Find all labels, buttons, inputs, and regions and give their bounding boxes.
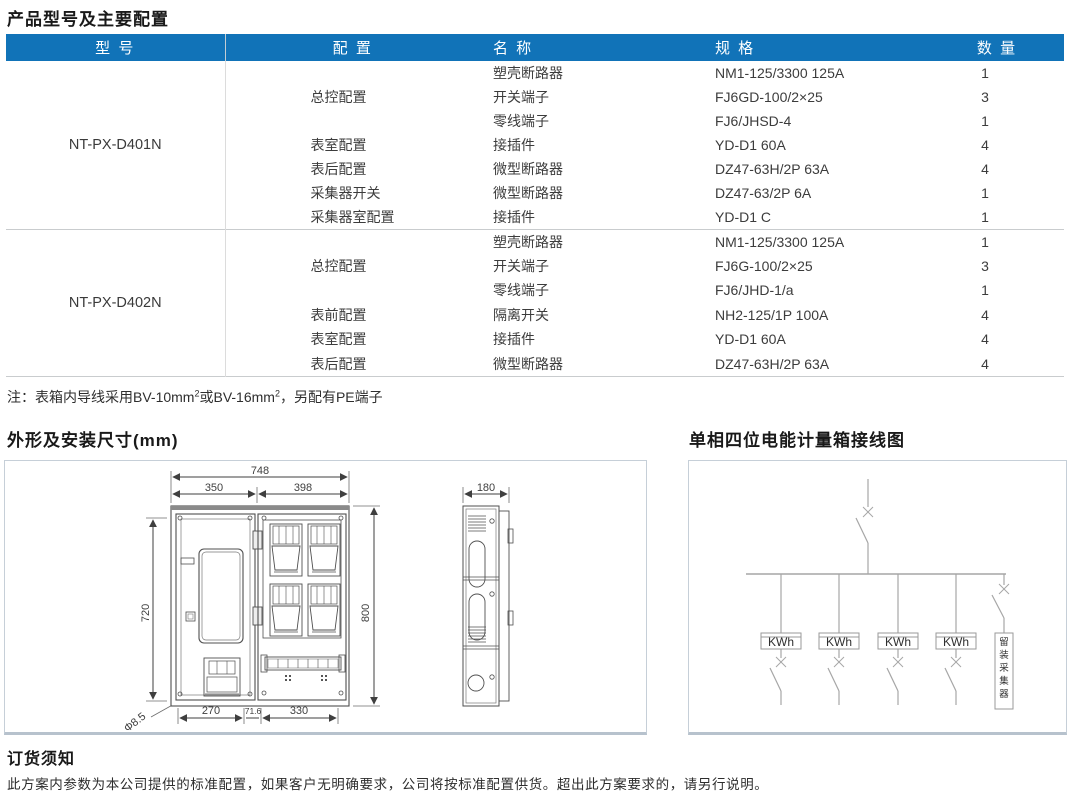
config-cell [225,109,480,133]
name-cell: 微型断路器 [480,157,702,181]
wiring-section-title: 单相四位电能计量箱接线图 [689,426,905,451]
dim-hole-diameter: Φ8.5 [122,710,148,732]
qty-cell: 4 [930,133,1064,157]
wiring-diagram-box: KWh KWh KWh KWh 留装采集器 [688,460,1067,735]
table-row: NT-PX-D402N塑壳断路器NM1-125/3300 125A1 [6,229,1064,254]
dim-bottom-left: 270 [202,705,220,717]
cabinet-dimension-drawing: 748 350 398 180 720 800 270 71.6 330 Φ8.… [5,461,646,732]
ordering-section-body: 此方案内参数为本公司提供的标准配置，如果客户无明确要求，公司将按标准配置供货。超… [7,773,768,793]
page-title: 产品型号及主要配置 [7,5,169,30]
qty-cell: 1 [930,181,1064,205]
spec-cell: NH2-125/1P 100A [702,303,930,328]
name-cell: 塑壳断路器 [480,229,702,254]
name-cell: 接插件 [480,133,702,157]
qty-cell: 1 [930,229,1064,254]
name-cell: 接插件 [480,205,702,229]
spec-cell: NM1-125/3300 125A [702,61,930,85]
table-footnote: 注：表箱内导线采用BV-10mm2或BV-16mm2，另配有PE端子 [7,387,383,407]
dimension-drawing-box: 748 350 398 180 720 800 270 71.6 330 Φ8.… [4,460,647,735]
config-cell: 采集器室配置 [225,205,480,229]
name-cell: 零线端子 [480,278,702,303]
name-cell: 隔离开关 [480,303,702,328]
name-cell: 微型断路器 [480,181,702,205]
dim-inner-height: 720 [140,604,152,622]
config-cell: 表后配置 [225,157,480,181]
name-cell: 塑壳断路器 [480,61,702,85]
config-cell [225,229,480,254]
col-header-config: 配 置 [225,34,480,61]
name-cell: 微型断路器 [480,352,702,377]
cabinet-side-view [463,506,513,706]
collector-reserve-label: 留装采集器 [999,636,1009,700]
spec-cell: DZ47-63H/2P 63A [702,157,930,181]
config-cell [225,278,480,303]
table-row: NT-PX-D401N塑壳断路器NM1-125/3300 125A1 [6,61,1064,85]
kwh-meter-label: KWh [943,635,969,649]
config-cell: 总控配置 [225,254,480,279]
spec-cell: YD-D1 60A [702,327,930,352]
model-cell: NT-PX-D401N [6,61,225,229]
config-cell: 表后配置 [225,352,480,377]
model-group-d402n: NT-PX-D402N塑壳断路器NM1-125/3300 125A1总控配置开关… [6,229,1064,376]
qty-cell: 4 [930,303,1064,328]
qty-cell: 3 [930,254,1064,279]
spec-cell: DZ47-63H/2P 63A [702,352,930,377]
spec-cell: YD-D1 60A [702,133,930,157]
dim-bottom-right: 330 [290,705,308,717]
col-header-model: 型 号 [6,34,225,61]
qty-cell: 4 [930,327,1064,352]
product-config-table: 型 号 配 置 名 称 规 格 数 量 NT-PX-D401N塑壳断路器NM1-… [6,34,1064,377]
name-cell: 零线端子 [480,109,702,133]
ordering-section-title: 订货须知 [7,745,75,769]
col-header-spec: 规 格 [702,34,930,61]
qty-cell: 3 [930,85,1064,109]
spec-cell: NM1-125/3300 125A [702,229,930,254]
col-header-name: 名 称 [480,34,702,61]
wiring-diagram: KWh KWh KWh KWh 留装采集器 [689,461,1066,732]
qty-cell: 1 [930,61,1064,85]
qty-cell: 1 [930,109,1064,133]
spec-cell: YD-D1 C [702,205,930,229]
config-cell: 采集器开关 [225,181,480,205]
config-cell: 表室配置 [225,327,480,352]
dim-bottom-mid: 71.6 [245,706,262,716]
config-cell: 表室配置 [225,133,480,157]
spec-cell: FJ6GD-100/2×25 [702,85,930,109]
qty-cell: 4 [930,157,1064,181]
spec-cell: FJ6/JHSD-4 [702,109,930,133]
table-header: 型 号 配 置 名 称 规 格 数 量 [6,34,1064,61]
model-cell: NT-PX-D402N [6,229,225,376]
dim-total-width: 748 [251,465,269,477]
col-header-qty: 数 量 [930,34,1064,61]
dim-left-width: 350 [205,482,223,494]
name-cell: 接插件 [480,327,702,352]
config-cell: 表前配置 [225,303,480,328]
dim-depth: 180 [477,482,495,494]
qty-cell: 1 [930,205,1064,229]
qty-cell: 4 [930,352,1064,377]
dim-height: 800 [360,604,372,622]
spec-cell: FJ6/JHD-1/a [702,278,930,303]
dim-right-width: 398 [294,482,312,494]
qty-cell: 1 [930,278,1064,303]
model-group-d401n: NT-PX-D401N塑壳断路器NM1-125/3300 125A1总控配置开关… [6,61,1064,229]
name-cell: 开关端子 [480,85,702,109]
kwh-meter-label: KWh [885,635,911,649]
spec-cell: FJ6G-100/2×25 [702,254,930,279]
name-cell: 开关端子 [480,254,702,279]
kwh-meter-label: KWh [768,635,794,649]
kwh-meter-label: KWh [826,635,852,649]
config-cell: 总控配置 [225,85,480,109]
spec-cell: DZ47-63/2P 6A [702,181,930,205]
dimensions-section-title: 外形及安装尺寸(mm) [7,426,179,451]
config-cell [225,61,480,85]
